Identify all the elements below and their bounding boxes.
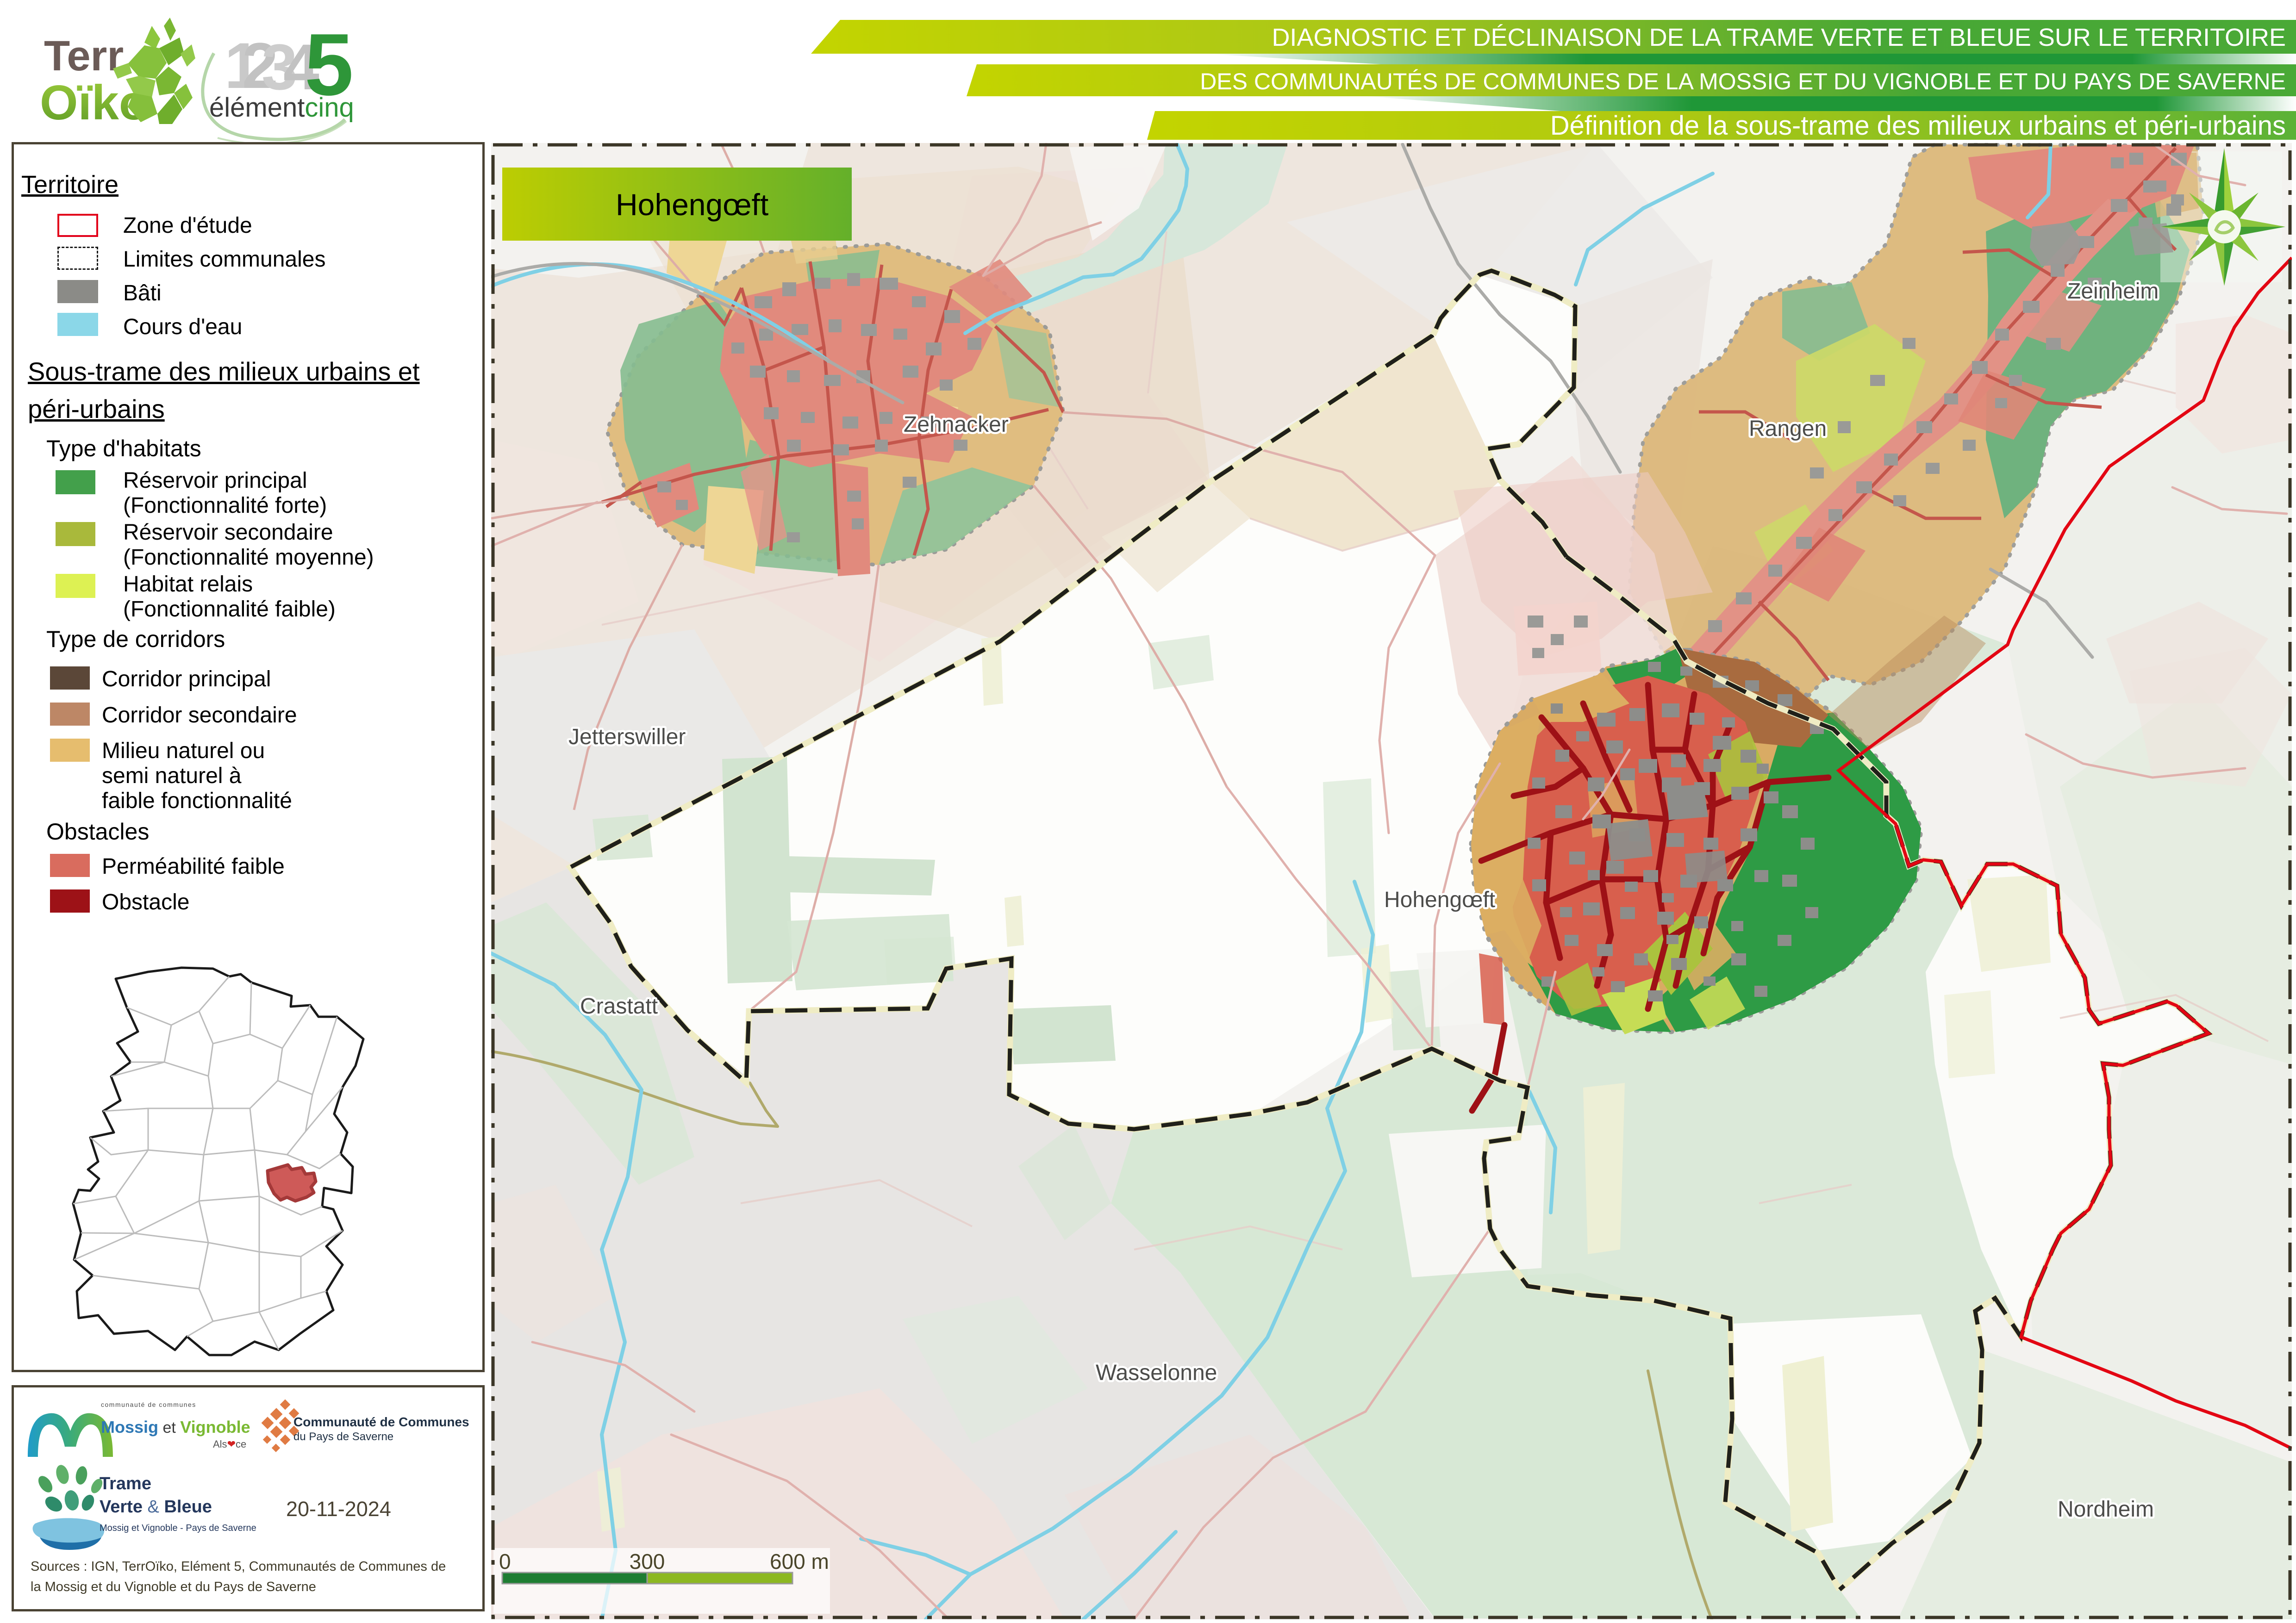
svg-text:Trame: Trame <box>100 1474 151 1493</box>
svg-text:communauté de communes: communauté de communes <box>101 1401 196 1408</box>
svg-text:0: 0 <box>499 1549 511 1573</box>
svg-text:Zehnacker: Zehnacker <box>904 412 1009 437</box>
svg-text:la Mossig et du Vignoble et du: la Mossig et du Vignoble et du Pays de S… <box>31 1579 316 1594</box>
svg-text:Rangen: Rangen <box>1749 417 1827 441</box>
svg-text:DES COMMUNAUTÉS DE COMMUNES DE: DES COMMUNAUTÉS DE COMMUNES DE LA MOSSIG… <box>1200 68 2286 94</box>
svg-text:Hohengœft: Hohengœft <box>1384 888 1495 912</box>
svg-text:Crastatt: Crastatt <box>580 994 658 1019</box>
svg-text:Mossig et Vignoble - Pays de S: Mossig et Vignoble - Pays de Saverne <box>100 1523 256 1533</box>
svg-text:DIAGNOSTIC ET DÉCLINAISON DE L: DIAGNOSTIC ET DÉCLINAISON DE LA TRAME VE… <box>1272 24 2286 51</box>
svg-text:Wasselonne: Wasselonne <box>1096 1361 1217 1385</box>
svg-text:600 m: 600 m <box>770 1549 829 1573</box>
svg-text:Hohengœft: Hohengœft <box>616 187 768 222</box>
svg-text:Verte & Bleue: Verte & Bleue <box>100 1497 212 1517</box>
svg-text:Définition de la sous-trame de: Définition de la sous-trame des milieux … <box>1550 111 2286 141</box>
svg-text:Jetterswiller: Jetterswiller <box>568 725 686 749</box>
svg-text:Als❤ce: Als❤ce <box>213 1438 246 1450</box>
svg-text:Mossig et Vignoble: Mossig et Vignoble <box>101 1418 250 1436</box>
svg-text:Communauté de Communes: Communauté de Communes <box>293 1415 469 1429</box>
svg-text:du Pays de Saverne: du Pays de Saverne <box>293 1430 393 1443</box>
svg-text:Nordheim: Nordheim <box>2058 1497 2154 1522</box>
svg-text:Sources : IGN, TerrOïko, Eléme: Sources : IGN, TerrOïko, Elément 5, Comm… <box>31 1559 446 1574</box>
svg-text:élémentcinq: élémentcinq <box>209 93 354 123</box>
svg-text:Zeinheim: Zeinheim <box>2067 279 2159 304</box>
svg-text:300: 300 <box>630 1549 665 1573</box>
svg-text:Terr: Terr <box>44 32 124 80</box>
svg-text:20-11-2024: 20-11-2024 <box>286 1497 391 1521</box>
